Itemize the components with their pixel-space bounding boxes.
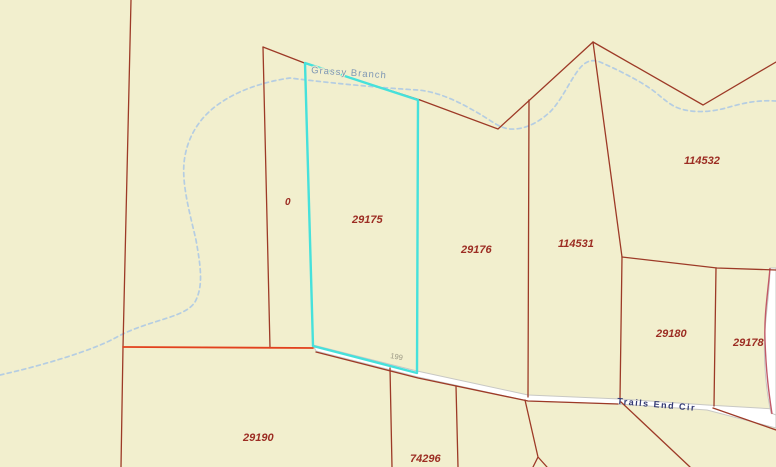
parcel-label-29180: 29180 xyxy=(655,328,687,340)
parcel-label-29175: 29175 xyxy=(351,214,383,226)
parcel-label-29176: 29176 xyxy=(460,244,492,256)
map-background xyxy=(0,0,776,467)
parcel-label-29178: 29178 xyxy=(732,337,764,349)
parcel-label-29190: 29190 xyxy=(242,432,274,444)
parcel-label-74296: 74296 xyxy=(410,453,441,465)
parcel-label-114532: 114532 xyxy=(684,155,720,167)
parcel-label-0: 0 xyxy=(285,197,291,208)
parcel-label-114531: 114531 xyxy=(558,238,594,250)
boundary-highlight-segment xyxy=(123,347,313,348)
map-canvas[interactable]: 0 29175 29176 114531 114532 29180 29178 … xyxy=(0,0,776,467)
parcel-map: 0 29175 29176 114531 114532 29180 29178 … xyxy=(0,0,776,467)
